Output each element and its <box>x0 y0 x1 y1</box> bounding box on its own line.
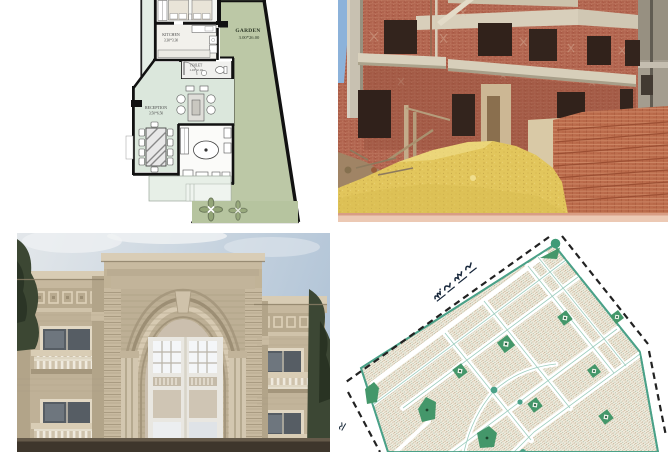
svg-text:RECEPTION: RECEPTION <box>145 105 167 110</box>
svg-text:KITCHEN: KITCHEN <box>162 32 180 37</box>
svg-text:GARDEN: GARDEN <box>235 28 260 34</box>
svg-text:3.30*3.30: 3.30*3.30 <box>164 39 179 43</box>
svg-text:3.00*26.00: 3.00*26.00 <box>239 35 260 40</box>
svg-text:3.50*6.50: 3.50*6.50 <box>149 112 164 116</box>
